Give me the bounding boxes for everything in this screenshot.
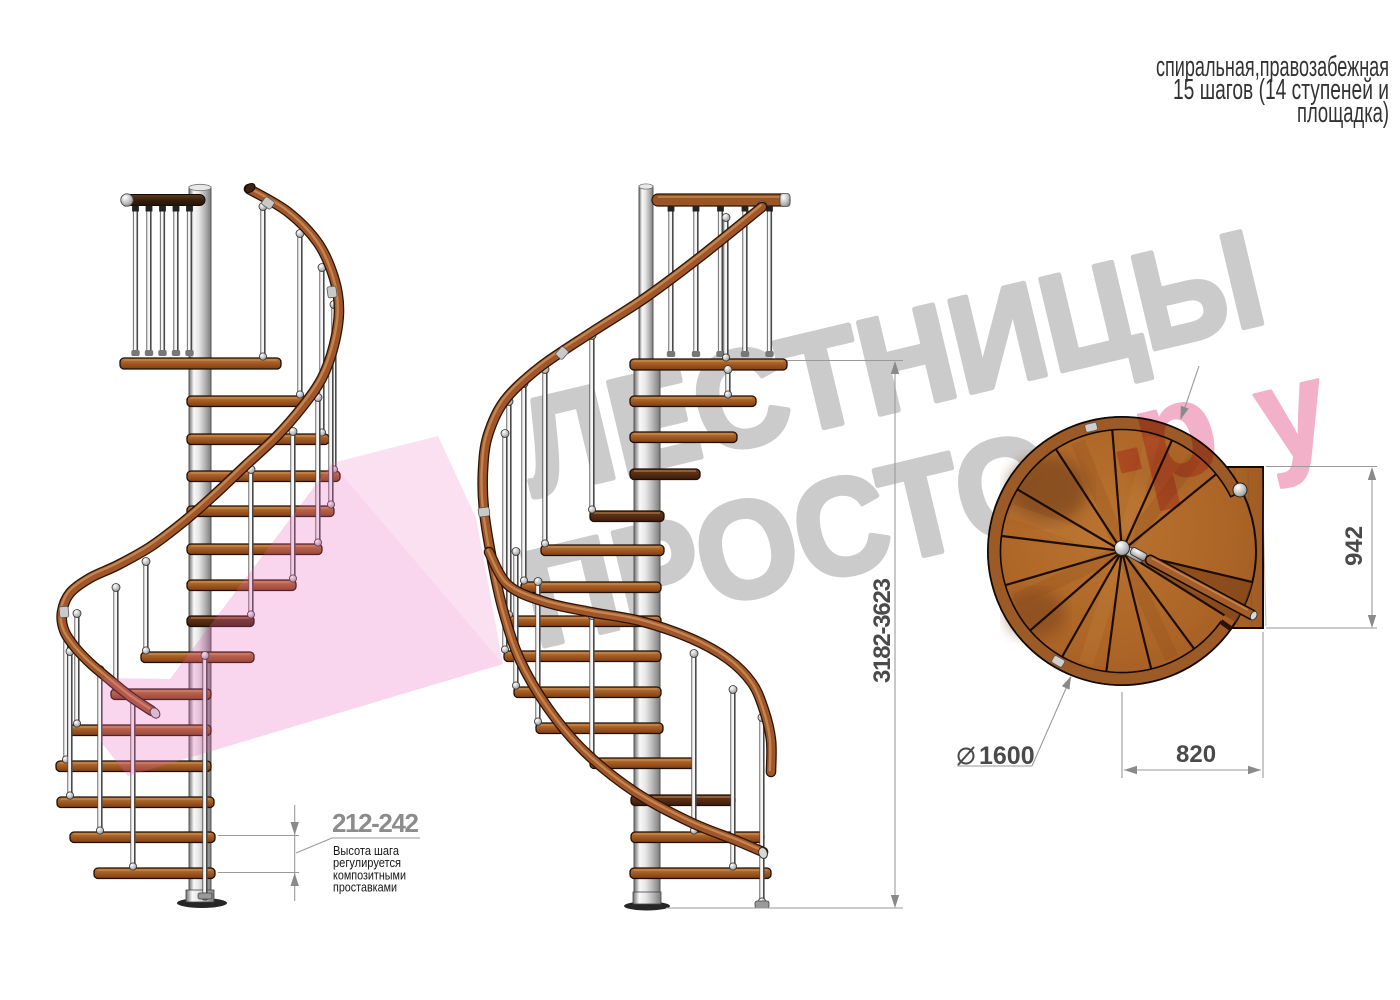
svg-text:площадка): площадка) [1297,97,1389,129]
svg-text:проставками: проставками [333,880,397,895]
svg-text:1600: 1600 [979,742,1035,770]
svg-text:820: 820 [1176,741,1216,768]
svg-text:3182-3623: 3182-3623 [869,578,896,683]
svg-text:212-242: 212-242 [332,808,419,838]
svg-text:942: 942 [1341,526,1368,566]
